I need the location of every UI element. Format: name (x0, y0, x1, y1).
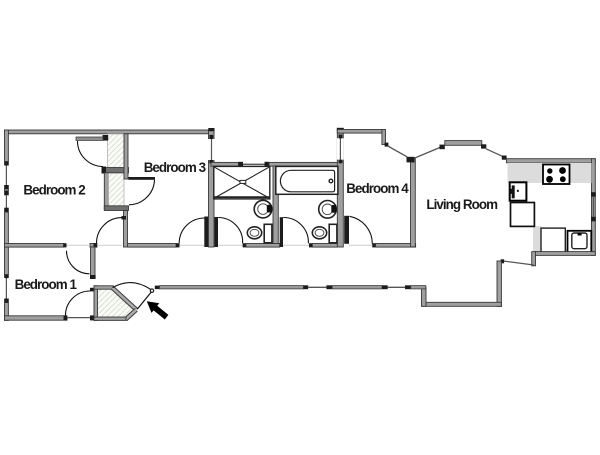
svg-text:Living Room: Living Room (426, 197, 498, 212)
svg-text:Bedroom 2: Bedroom 2 (23, 183, 85, 198)
svg-text:Bedroom 3: Bedroom 3 (144, 160, 206, 175)
svg-text:Bedroom 4: Bedroom 4 (346, 181, 409, 196)
svg-text:Bedroom 1: Bedroom 1 (15, 277, 78, 292)
